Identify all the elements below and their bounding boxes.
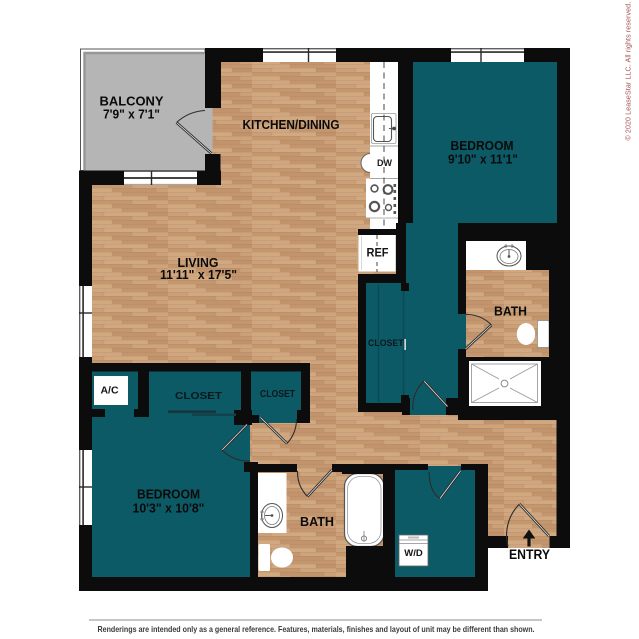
svg-text:CLOSET: CLOSET bbox=[260, 389, 295, 400]
svg-text:BALCONY: BALCONY bbox=[100, 94, 164, 109]
svg-text:CLOSET: CLOSET bbox=[368, 338, 404, 349]
svg-text:A/C: A/C bbox=[100, 385, 119, 397]
svg-text:CLOSET: CLOSET bbox=[175, 391, 222, 402]
svg-text:W/D: W/D bbox=[404, 548, 423, 559]
svg-text:10'3" x 10'8": 10'3" x 10'8" bbox=[133, 502, 205, 516]
svg-text:11'11" x 17'5": 11'11" x 17'5" bbox=[160, 268, 237, 282]
svg-text:© 2020 LeaseStar LLC. All righ: © 2020 LeaseStar LLC. All rights reserve… bbox=[625, 2, 633, 141]
svg-text:REF: REF bbox=[367, 248, 389, 260]
svg-text:BEDROOM: BEDROOM bbox=[137, 487, 200, 502]
svg-text:7'9" x 7'1": 7'9" x 7'1" bbox=[103, 108, 160, 122]
svg-text:BATH: BATH bbox=[494, 304, 527, 319]
svg-text:ENTRY: ENTRY bbox=[509, 547, 550, 562]
svg-text:BATH: BATH bbox=[300, 514, 334, 529]
svg-text:9'10" x 11'1": 9'10" x 11'1" bbox=[448, 153, 518, 167]
svg-text:Renderings are intended only a: Renderings are intended only as a genera… bbox=[98, 625, 535, 634]
svg-text:BEDROOM: BEDROOM bbox=[451, 138, 514, 153]
svg-text:DW: DW bbox=[377, 158, 392, 168]
svg-text:KITCHEN/DINING: KITCHEN/DINING bbox=[243, 117, 340, 132]
